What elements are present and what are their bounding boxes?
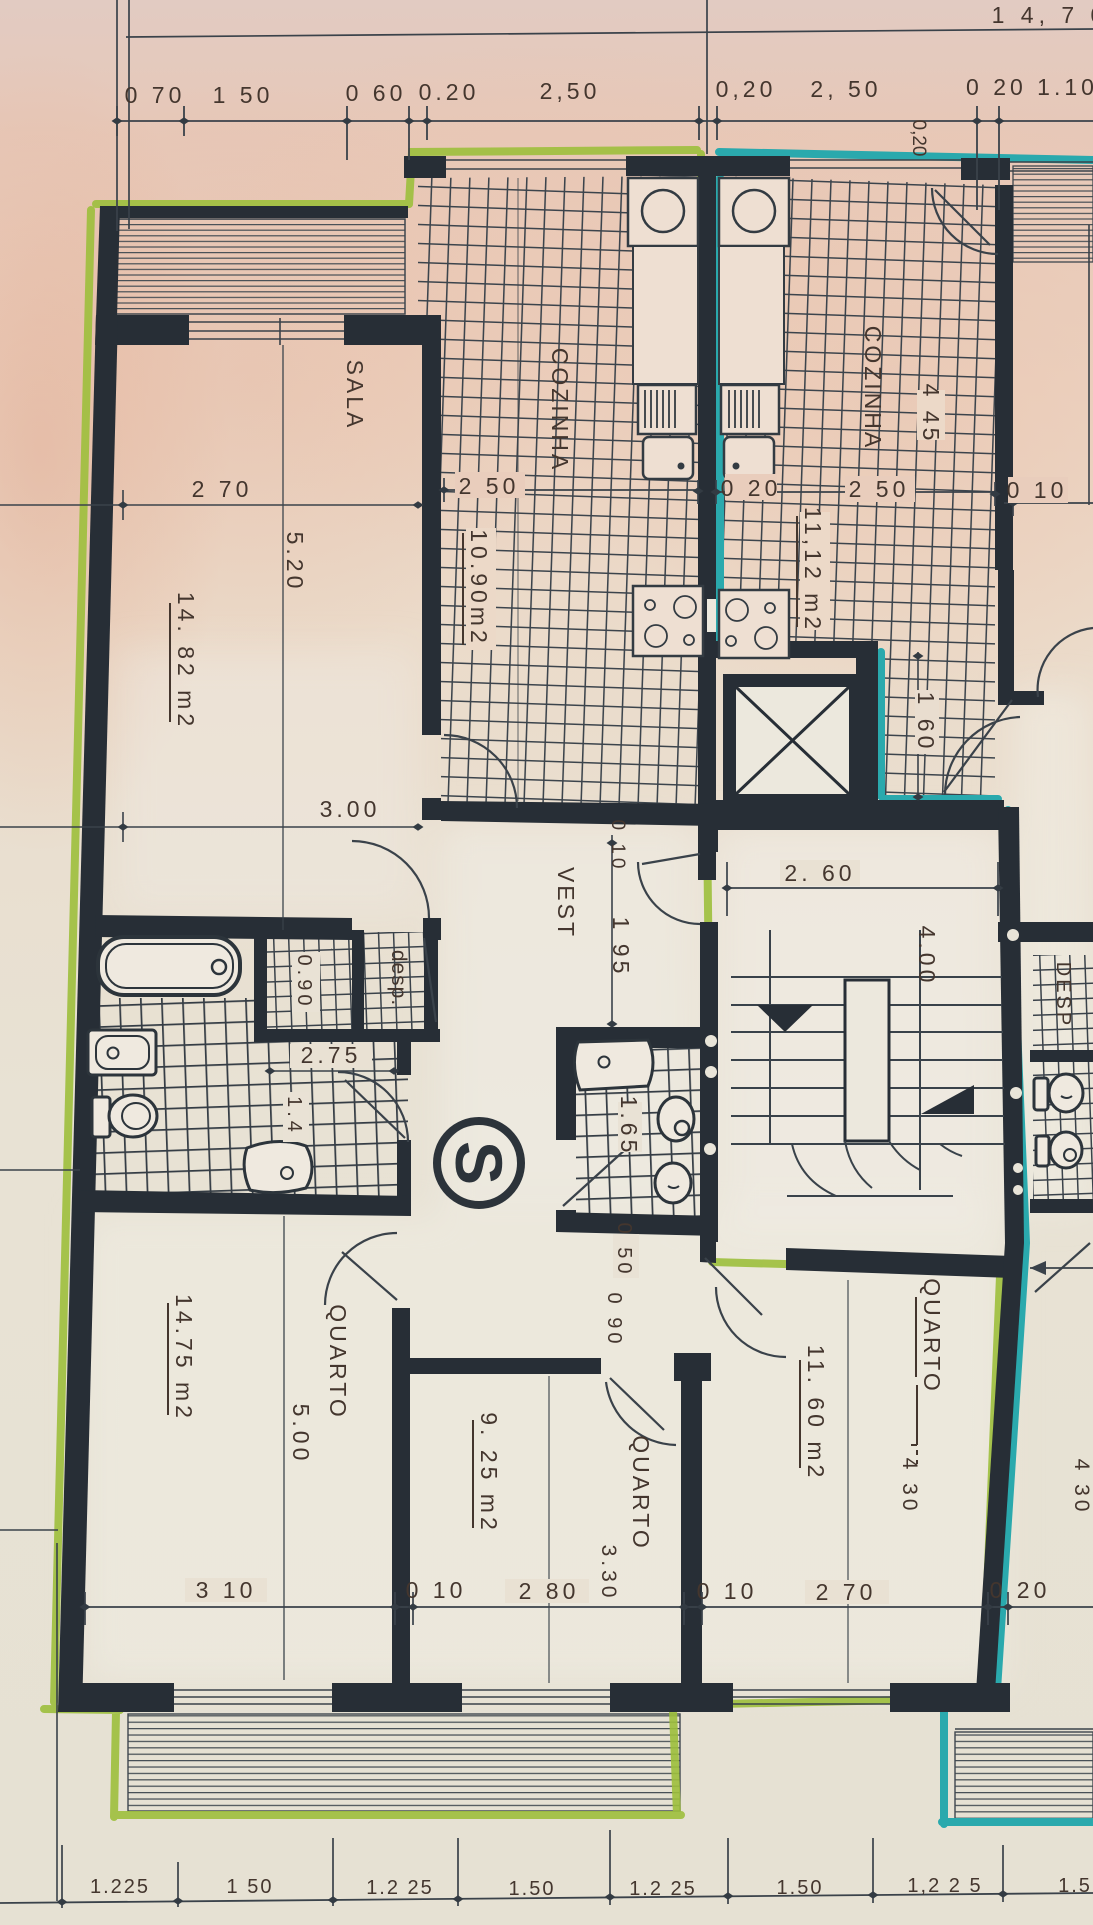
svg-text:1.2 25: 1.2 25 [366,1877,434,1899]
svg-text:5.20: 5.20 [282,532,308,593]
svg-text:11,12 m2: 11,12 m2 [800,507,826,633]
svg-text:0 50: 0 50 [613,1223,635,1278]
svg-text:2. 60: 2. 60 [784,860,855,886]
svg-text:1.50: 1.50 [777,1877,824,1899]
svg-text:0,20: 0,20 [908,120,929,157]
svg-text:2 50: 2 50 [849,476,910,502]
svg-text:1.5: 1.5 [1058,1875,1092,1897]
svg-text:0 60: 0 60 [346,80,407,106]
svg-text:1.50: 1.50 [509,1878,556,1900]
svg-text:10.90m2: 10.90m2 [466,529,492,647]
svg-text:1 50: 1 50 [213,82,274,108]
svg-text:VEST: VEST [553,867,579,939]
svg-text:0 20: 0 20 [721,475,782,501]
svg-text:2,50: 2,50 [540,78,601,104]
svg-text:COZINHA: COZINHA [860,326,886,451]
svg-text:9. 25 m2: 9. 25 m2 [476,1412,502,1534]
svg-text:11. 60 m2: 11. 60 m2 [803,1345,829,1482]
svg-text:SALA: SALA [342,360,368,431]
svg-text:0 20: 0 20 [990,1577,1051,1603]
svg-text:2 80: 2 80 [519,1578,580,1604]
svg-text:3 10: 3 10 [196,1577,257,1603]
svg-text:COZINHA: COZINHA [547,348,573,473]
svg-text:desp.: desp. [387,950,410,1006]
svg-text:1 50: 1 50 [227,1876,274,1898]
svg-text:4 45: 4 45 [918,384,944,445]
svg-text:2 70: 2 70 [816,1579,877,1605]
svg-text:1,2 2 5: 1,2 2 5 [907,1875,982,1897]
svg-text:14. 82 m2: 14. 82 m2 [173,592,199,730]
svg-text:3.30: 3.30 [597,1545,620,1602]
svg-text:1 60: 1 60 [913,692,939,753]
svg-text:2, 50: 2, 50 [810,76,881,102]
svg-text:5.00: 5.00 [288,1404,314,1465]
svg-text:2.75: 2.75 [301,1042,362,1068]
svg-text:0 10: 0 10 [1007,477,1068,503]
svg-text:14.75 m2: 14.75 m2 [171,1294,197,1422]
svg-text:0 70: 0 70 [125,82,186,108]
svg-text:0 90: 0 90 [603,1293,625,1348]
svg-text:QUARTO: QUARTO [628,1435,654,1551]
svg-text:DESP: DESP [1052,962,1074,1028]
svg-text:1 4, 7 0: 1 4, 7 0 [992,2,1093,28]
svg-text:4 30: 4 30 [898,1458,921,1515]
svg-text:1.225: 1.225 [90,1876,150,1898]
svg-text:2 70: 2 70 [192,476,253,502]
svg-text:2 50: 2 50 [459,473,520,499]
svg-text:0.90: 0.90 [293,955,315,1010]
svg-text:0 10: 0 10 [406,1577,467,1603]
svg-text:1.4: 1.4 [283,1096,305,1136]
svg-text:1.2 25: 1.2 25 [629,1878,697,1900]
svg-text:1.65: 1.65 [616,1096,642,1157]
svg-text:4.00: 4.00 [914,926,940,987]
svg-text:0 10: 0 10 [607,820,628,873]
svg-text:0 10: 0 10 [697,1578,758,1604]
svg-text:0.20: 0.20 [419,79,480,105]
svg-text:QUARTO: QUARTO [325,1304,351,1420]
svg-text:S: S [442,1141,516,1185]
svg-text:4 30: 4 30 [1070,1459,1093,1516]
svg-text:1 95: 1 95 [608,917,634,978]
svg-text:QUARTO: QUARTO [919,1278,945,1394]
svg-text:3.00: 3.00 [320,796,381,822]
svg-text:0,20: 0,20 [716,76,777,102]
svg-text:0 20 1.10: 0 20 1.10 [966,74,1093,100]
